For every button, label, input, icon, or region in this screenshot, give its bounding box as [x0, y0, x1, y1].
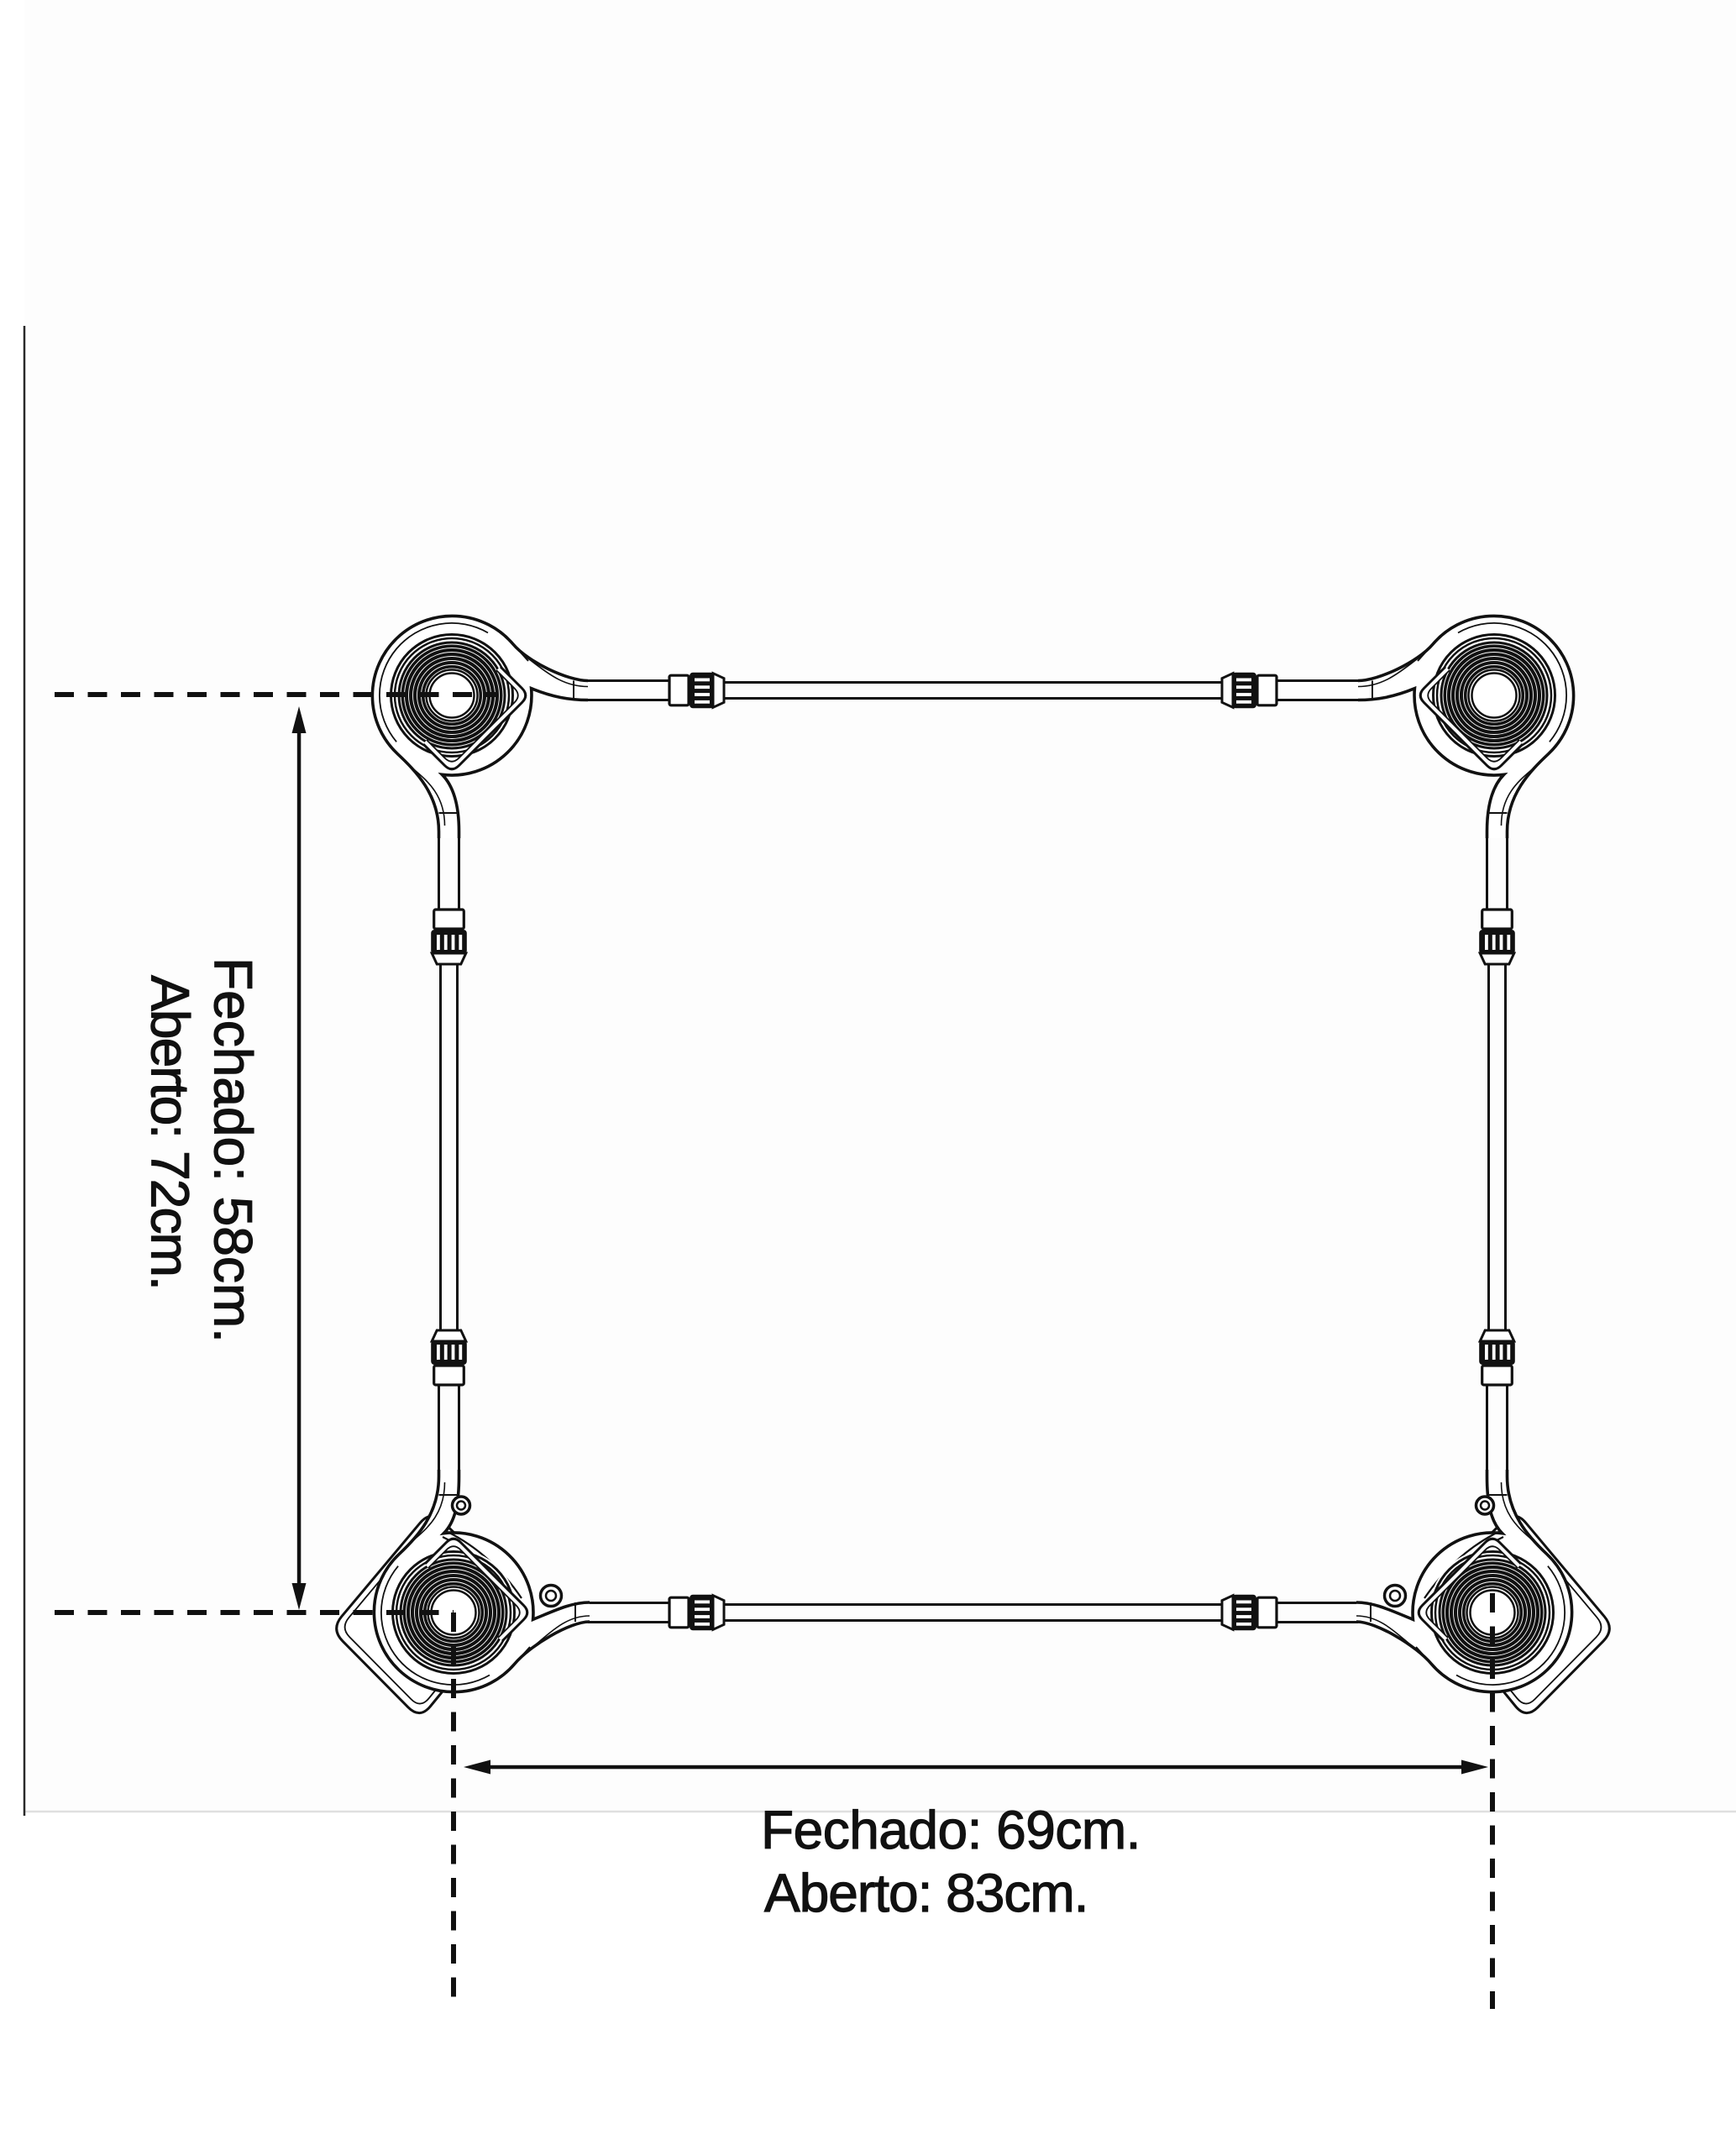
svg-text:Aberto: 83cm.: Aberto: 83cm.: [764, 1863, 1088, 1923]
svg-text:Aberto: 72cm.: Aberto: 72cm.: [140, 975, 201, 1289]
svg-text:Fechado: 58cm.: Fechado: 58cm.: [203, 957, 264, 1343]
svg-text:Fechado: 69cm.: Fechado: 69cm.: [761, 1800, 1141, 1860]
